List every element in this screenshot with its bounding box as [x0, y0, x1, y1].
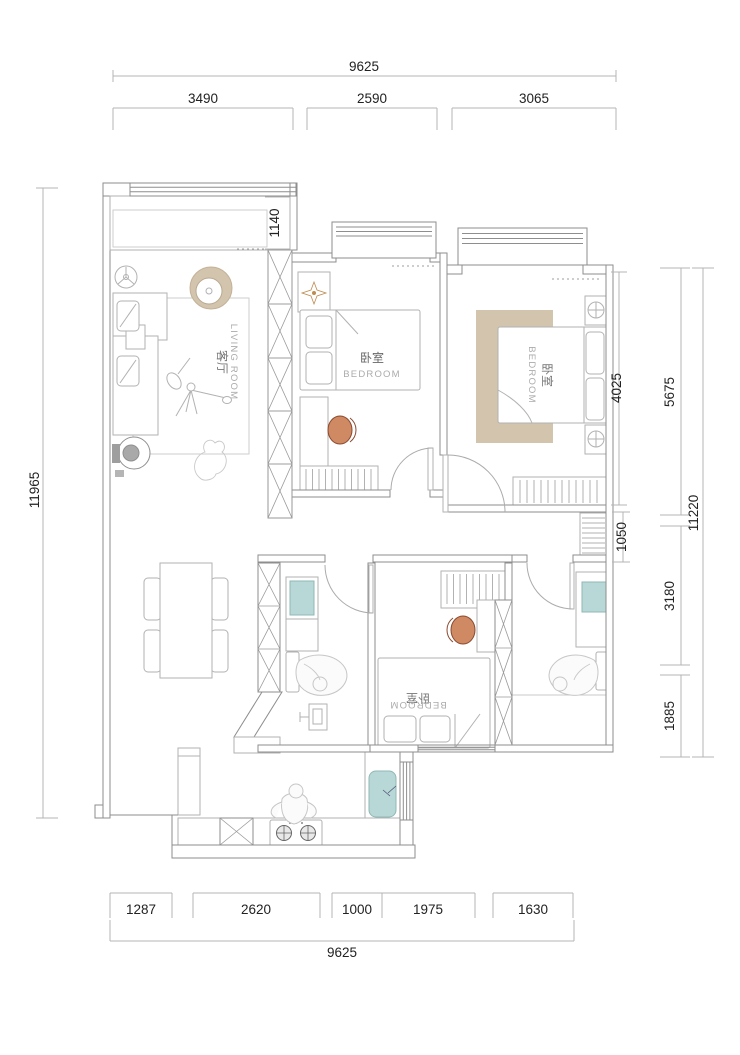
wall-segment [292, 253, 336, 262]
dim-line [113, 108, 293, 130]
pillow [306, 316, 332, 348]
dim-top-total: 9625 [349, 59, 379, 74]
wall-segment [373, 555, 512, 562]
pendant-lamp-inner [196, 278, 222, 304]
shoe-cabinet [580, 513, 607, 559]
floor-plan-canvas: 客厅 LIVING ROOM 卧室 BEDROOM 卧室 BEDROOM 卧室 … [0, 0, 740, 1055]
floor-lamp-icon [176, 383, 232, 416]
dim-bottom-1: 1287 [126, 902, 156, 917]
dim-right-total: 11220 [686, 495, 701, 532]
wall-segment [447, 505, 606, 512]
toilet-with-person-icon [549, 652, 608, 695]
dim-cabinet: 1050 [614, 522, 629, 552]
dim-left-total: 11965 [27, 472, 42, 509]
door-bedroom-top [391, 448, 433, 490]
left-wall [103, 183, 110, 818]
desk-chair-icon [328, 416, 356, 444]
pillow [586, 332, 604, 374]
hatched-column-bath-middle [258, 563, 280, 692]
dim-bottom-4: 1975 [413, 902, 443, 917]
wall-foot [95, 805, 103, 818]
wall-segment [512, 555, 527, 562]
living-room-window [130, 183, 296, 196]
washing-machine-icon [112, 437, 150, 477]
door-master [443, 455, 505, 512]
living-room-label-en: LIVING ROOM [228, 324, 239, 401]
master-bay-window [458, 228, 587, 265]
dim-top-1: 3490 [188, 91, 218, 106]
diagonal-wall [234, 692, 282, 737]
floor-plan-page: 客厅 LIVING ROOM 卧室 BEDROOM 卧室 BEDROOM 卧室 … [0, 0, 740, 1055]
ceiling-fan-icon [115, 266, 137, 288]
dim-line [452, 108, 616, 130]
wall-segment [505, 563, 512, 600]
kitchen-sink-icon [369, 771, 396, 817]
dining-chair [144, 630, 161, 672]
door-bathroom-right [527, 563, 574, 609]
dim-right-3: 1885 [662, 701, 677, 731]
living-room-label-zh: 客厅 [215, 350, 230, 374]
bedroom-top-label-en: BEDROOM [343, 369, 401, 380]
dim-top-3: 3065 [519, 91, 549, 106]
dim-line-bottom-total [110, 920, 574, 941]
wall-segment [447, 265, 462, 274]
furniture-bathroom-right [512, 572, 608, 695]
dim-line [307, 108, 437, 130]
dining-chair [144, 578, 161, 620]
mirror [290, 581, 314, 615]
wall-segment [440, 253, 447, 455]
furniture-bathroom-middle [286, 577, 347, 730]
dim-balcony-depth: 1140 [267, 208, 282, 237]
dim-master-length: 4025 [609, 373, 624, 403]
pillow [306, 352, 332, 384]
toilet-with-person-icon [286, 652, 347, 695]
door-bedroom-bottom [325, 565, 373, 613]
bedroom-top-bay-window [332, 222, 436, 258]
furniture-kitchen [178, 748, 400, 846]
table-lamp-icon [588, 302, 604, 318]
bay-seat [113, 210, 267, 247]
wall-step [110, 815, 178, 845]
dining-table [160, 563, 212, 678]
dining-chair [211, 578, 228, 620]
guitar-icon [164, 358, 190, 392]
wall-segment [495, 745, 613, 752]
furniture-bedroom-top [298, 266, 434, 497]
decor-plant [195, 440, 227, 480]
wall-segment [573, 555, 606, 562]
walls [95, 183, 613, 858]
desk-chair-icon [447, 616, 475, 644]
dim-bottom-2: 2620 [241, 902, 271, 917]
dim-right-1: 5675 [662, 377, 677, 407]
pillow [586, 378, 604, 420]
wall-segment [258, 745, 370, 752]
master-label-zh: 卧室 [540, 363, 555, 387]
fridge [178, 748, 200, 815]
hatched-column-living [268, 250, 292, 518]
dim-bottom-3: 1000 [342, 902, 372, 917]
bedroom-top-label-zh: 卧室 [360, 350, 384, 365]
wall-segment [103, 183, 130, 196]
pillow [420, 716, 450, 742]
kitchen-bottom-wall [172, 845, 415, 858]
wall-segment [370, 745, 418, 752]
dim-bottom-5: 1630 [518, 902, 548, 917]
balcony-band [110, 196, 290, 250]
wardrobe [513, 477, 606, 506]
desk [300, 397, 328, 469]
dim-right-2: 3180 [662, 581, 677, 611]
hatched-column-bath-right [495, 600, 512, 745]
wall-segment [258, 555, 325, 562]
shower-drain-icon [300, 704, 327, 730]
dim-bottom-total: 9625 [327, 945, 357, 960]
master-label-en: BEDROOM [526, 346, 537, 404]
furniture-bedroom-bottom [378, 571, 511, 748]
dining-chair [211, 630, 228, 672]
mirror [582, 582, 606, 612]
wall-segment [292, 490, 390, 497]
desk [477, 600, 495, 652]
bedroom-bottom-label-en: BEDROOM [389, 699, 447, 710]
pillow [384, 716, 416, 742]
right-wall [606, 265, 613, 752]
vanity-counter [286, 619, 318, 651]
table-lamp-icon [588, 431, 604, 447]
dim-top-2: 2590 [357, 91, 387, 106]
flue-box [220, 818, 253, 845]
